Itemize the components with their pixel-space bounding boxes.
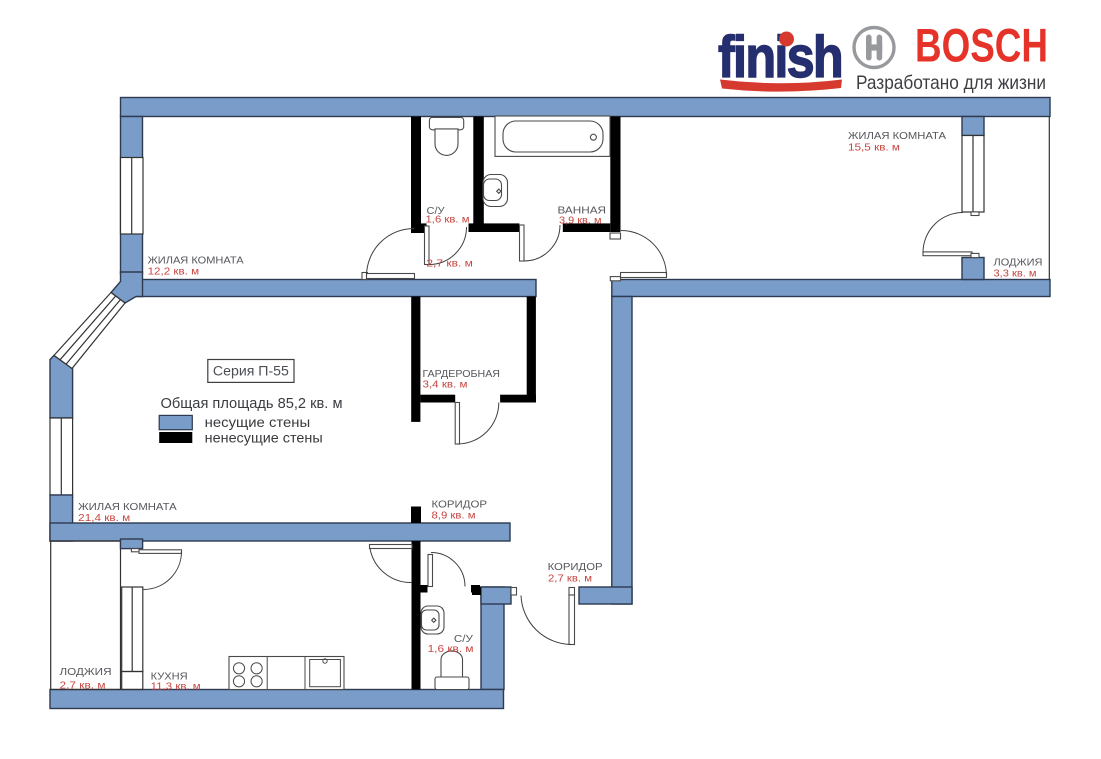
svg-text:finish: finish bbox=[718, 25, 842, 90]
svg-text:2,7 кв. м: 2,7 кв. м bbox=[548, 573, 592, 585]
svg-text:15,5 кв. м: 15,5 кв. м bbox=[848, 142, 900, 154]
svg-text:3,4 кв. м: 3,4 кв. м bbox=[423, 378, 468, 390]
svg-text:ЖИЛАЯ КОМНАТА: ЖИЛАЯ КОМНАТА bbox=[848, 130, 946, 142]
svg-text:11,3 кв. м: 11,3 кв. м bbox=[151, 681, 201, 693]
svg-text:8,9 кв. м: 8,9 кв. м bbox=[432, 510, 476, 522]
svg-text:ненесущие стены: ненесущие стены bbox=[205, 430, 323, 446]
svg-text:3,3 кв. м: 3,3 кв. м bbox=[994, 268, 1037, 280]
svg-text:Серия П-55: Серия П-55 bbox=[213, 363, 289, 378]
svg-text:Общая площадь 85,2 кв. м: Общая площадь 85,2 кв. м bbox=[161, 395, 343, 412]
svg-text:2,7 кв. м: 2,7 кв. м bbox=[426, 258, 473, 270]
svg-text:несущие стены: несущие стены bbox=[205, 414, 311, 430]
svg-text:3,9 кв. м: 3,9 кв. м bbox=[559, 214, 602, 226]
svg-text:ЛОДЖИЯ: ЛОДЖИЯ bbox=[60, 666, 112, 678]
svg-text:КОРИДОР: КОРИДОР bbox=[548, 561, 603, 573]
svg-text:Разработано для жизни: Разработано для жизни bbox=[856, 72, 1046, 94]
svg-text:1,6 кв. м: 1,6 кв. м bbox=[426, 214, 470, 226]
svg-text:2,7 кв. м: 2,7 кв. м bbox=[60, 679, 106, 691]
svg-text:BOSCH: BOSCH bbox=[915, 19, 1048, 72]
svg-text:21,4 кв. м: 21,4 кв. м bbox=[78, 512, 130, 524]
svg-text:1,6 кв. м: 1,6 кв. м bbox=[428, 643, 474, 655]
svg-text:12,2 кв. м: 12,2 кв. м bbox=[148, 266, 200, 278]
